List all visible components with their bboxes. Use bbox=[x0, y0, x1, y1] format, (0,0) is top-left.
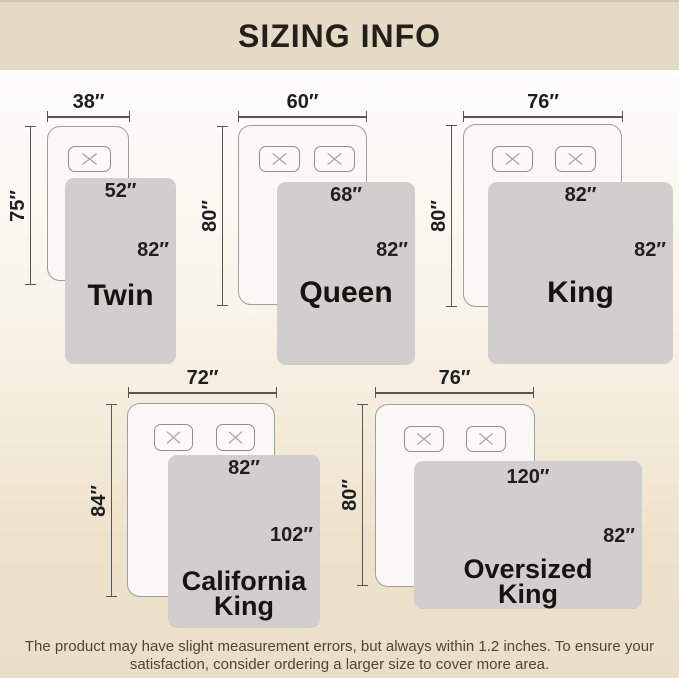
x-mark-icon bbox=[493, 147, 532, 171]
length-measure-line bbox=[446, 125, 457, 307]
length-measure: 75″ bbox=[25, 126, 36, 285]
width-measure: 38″ bbox=[47, 95, 130, 123]
disclaimer: The product may have slight measurement … bbox=[0, 632, 679, 678]
diagram-california-king: 72″ 84″ 82″ 102″ California King bbox=[0, 0, 679, 678]
x-mark-icon bbox=[315, 147, 354, 171]
length-measure: 80″ bbox=[446, 125, 457, 307]
blanket-width-label: 68″ bbox=[277, 184, 415, 207]
pillow-icon bbox=[466, 426, 506, 452]
page-title: SIZING INFO bbox=[238, 18, 441, 55]
x-mark-icon bbox=[467, 427, 505, 451]
pillow-icon bbox=[555, 146, 596, 172]
mattress-outline bbox=[463, 124, 622, 307]
blanket-width-label: 82″ bbox=[168, 457, 320, 480]
mattress-length-label: 75″ bbox=[6, 166, 30, 246]
width-measure-line bbox=[375, 387, 534, 398]
width-measure: 60″ bbox=[238, 95, 367, 123]
mattress-length-label: 84″ bbox=[87, 461, 111, 541]
mattress-outline bbox=[127, 403, 275, 597]
length-measure-line bbox=[106, 404, 117, 597]
width-measure: 76″ bbox=[375, 371, 534, 399]
blanket: 82″ 82″ King bbox=[488, 182, 673, 364]
x-mark-icon bbox=[155, 425, 192, 450]
width-measure: 72″ bbox=[128, 371, 277, 399]
size-name-label: Twin bbox=[65, 280, 176, 312]
blanket-length-label: 102″ bbox=[270, 524, 313, 547]
sizing-info-infographic: SIZING INFO 38″ 75″ 52″ 82″ Twin 60″ bbox=[0, 0, 679, 678]
mattress-length-label: 80″ bbox=[198, 176, 222, 256]
size-name-label: King bbox=[488, 277, 673, 309]
blanket-width-label: 120″ bbox=[414, 466, 642, 489]
length-measure-line bbox=[25, 126, 36, 285]
blanket-length-label: 82″ bbox=[634, 239, 666, 262]
width-measure-line bbox=[128, 387, 277, 398]
blanket: 52″ 82″ Twin bbox=[65, 178, 176, 364]
blanket-width-label: 82″ bbox=[488, 184, 673, 207]
mattress-outline bbox=[238, 125, 367, 305]
blanket-length-label: 82″ bbox=[376, 239, 408, 262]
pillow-icon bbox=[314, 146, 355, 172]
length-measure-line bbox=[357, 404, 368, 586]
header: SIZING INFO bbox=[0, 0, 679, 70]
blanket-width-label: 52″ bbox=[65, 180, 176, 203]
size-name-label: Oversized King bbox=[444, 557, 612, 607]
blanket: 120″ 82″ Oversized King bbox=[414, 461, 642, 609]
blanket-length-label: 82″ bbox=[137, 239, 169, 262]
length-measure-line bbox=[217, 126, 228, 306]
pillow-icon bbox=[216, 424, 255, 451]
mattress-length-label: 80″ bbox=[338, 455, 362, 535]
width-measure-line bbox=[238, 111, 367, 122]
length-measure: 84″ bbox=[106, 404, 117, 597]
mattress-width-label: 76″ bbox=[463, 91, 623, 114]
length-measure: 80″ bbox=[217, 126, 228, 306]
x-mark-icon bbox=[217, 425, 254, 450]
mattress-width-label: 38″ bbox=[47, 91, 130, 114]
width-measure-line bbox=[463, 111, 623, 122]
pillow-icon bbox=[68, 146, 111, 172]
mattress-outline bbox=[47, 126, 129, 281]
diagram-oversized-king: 76″ 80″ 120″ 82″ Oversized King bbox=[0, 0, 679, 678]
mattress-outline bbox=[375, 404, 535, 587]
length-measure: 80″ bbox=[357, 404, 368, 586]
diagram-twin: 38″ 75″ 52″ 82″ Twin bbox=[0, 0, 679, 678]
diagram-king: 76″ 80″ 82″ 82″ King bbox=[0, 0, 679, 678]
mattress-width-label: 76″ bbox=[375, 367, 534, 390]
mattress-length-label: 80″ bbox=[427, 176, 451, 256]
mattress-width-label: 72″ bbox=[128, 367, 277, 390]
blanket-length-label: 82″ bbox=[603, 525, 635, 548]
width-measure-line bbox=[47, 111, 130, 122]
width-measure: 76″ bbox=[463, 95, 623, 123]
x-mark-icon bbox=[69, 147, 110, 171]
pillow-icon bbox=[154, 424, 193, 451]
pillow-icon bbox=[492, 146, 533, 172]
pillow-icon bbox=[404, 426, 444, 452]
x-mark-icon bbox=[260, 147, 299, 171]
mattress-width-label: 60″ bbox=[238, 91, 367, 114]
blanket: 82″ 102″ California King bbox=[168, 455, 320, 628]
x-mark-icon bbox=[556, 147, 595, 171]
size-name-label: California King bbox=[174, 569, 314, 619]
blanket: 68″ 82″ Queen bbox=[277, 182, 415, 365]
disclaimer-line-1: The product may have slight measurement … bbox=[25, 638, 654, 655]
pillow-icon bbox=[259, 146, 300, 172]
diagram-queen: 60″ 80″ 68″ 82″ Queen bbox=[0, 0, 679, 678]
size-name-label: Queen bbox=[277, 277, 415, 309]
disclaimer-line-2: satisfaction, consider ordering a larger… bbox=[130, 656, 549, 673]
x-mark-icon bbox=[405, 427, 443, 451]
